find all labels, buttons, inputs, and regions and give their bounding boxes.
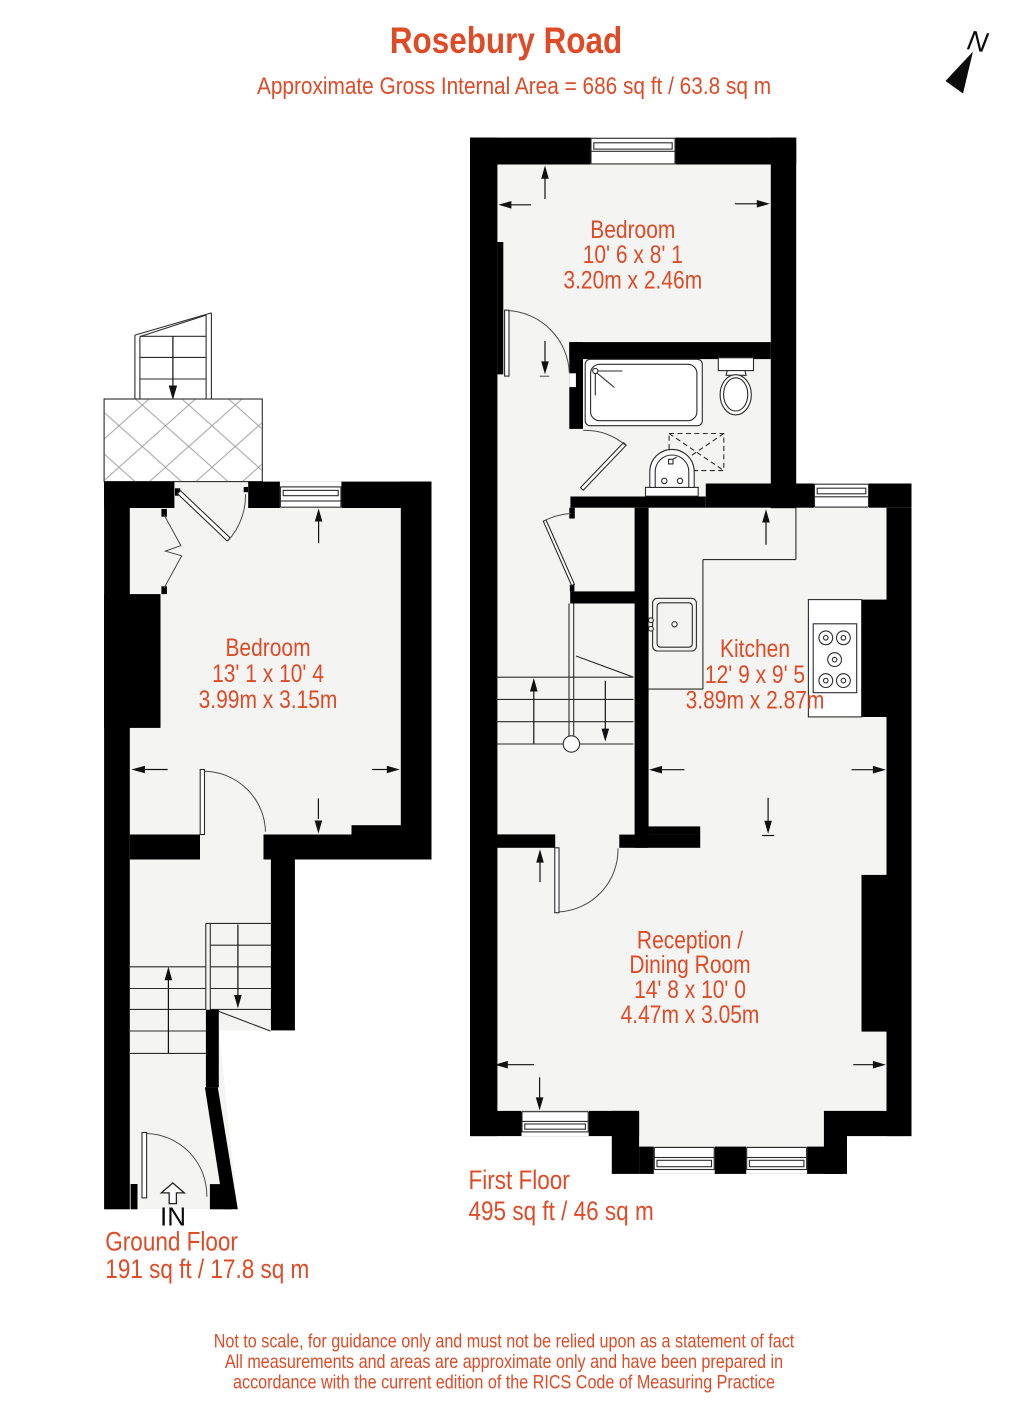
svg-text:3.99m x 3.15m: 3.99m x 3.15m — [199, 685, 338, 713]
svg-text:Approximate Gross Internal Are: Approximate Gross Internal Area = 686 sq… — [257, 71, 771, 99]
svg-text:4.47m x 3.05m: 4.47m x 3.05m — [621, 1000, 760, 1028]
svg-text:191 sq ft / 17.8 sq m: 191 sq ft / 17.8 sq m — [105, 1256, 309, 1285]
svg-text:10' 6 x 8' 1: 10' 6 x 8' 1 — [583, 241, 683, 269]
svg-text:First Floor: First Floor — [469, 1167, 570, 1196]
svg-text:Rosebury Road: Rosebury Road — [390, 21, 622, 62]
svg-text:12' 9 x 9' 5: 12' 9 x 9' 5 — [705, 660, 805, 688]
svg-text:Kitchen: Kitchen — [720, 634, 790, 662]
svg-text:Bedroom: Bedroom — [590, 215, 675, 243]
svg-text:13' 1 x 10' 4: 13' 1 x 10' 4 — [212, 660, 324, 688]
svg-text:Ground Floor: Ground Floor — [105, 1228, 238, 1257]
svg-text:Reception /: Reception / — [637, 926, 744, 954]
svg-text:Bedroom: Bedroom — [225, 633, 310, 661]
svg-text:14' 8 x 10' 0: 14' 8 x 10' 0 — [634, 975, 746, 1003]
svg-text:Not to scale, for guidance onl: Not to scale, for guidance only and must… — [214, 1330, 795, 1352]
svg-text:IN: IN — [160, 1201, 186, 1231]
svg-text:495 sq ft / 46 sq m: 495 sq ft / 46 sq m — [469, 1197, 654, 1226]
svg-text:All measurements and areas are: All measurements and areas are approxima… — [225, 1351, 783, 1373]
svg-text:3.20m x 2.46m: 3.20m x 2.46m — [563, 266, 702, 294]
svg-text:accordance with the current ed: accordance with the current edition of t… — [233, 1371, 775, 1393]
svg-text:3.89m x 2.87m: 3.89m x 2.87m — [686, 686, 825, 714]
svg-text:Dining Room: Dining Room — [629, 951, 750, 979]
